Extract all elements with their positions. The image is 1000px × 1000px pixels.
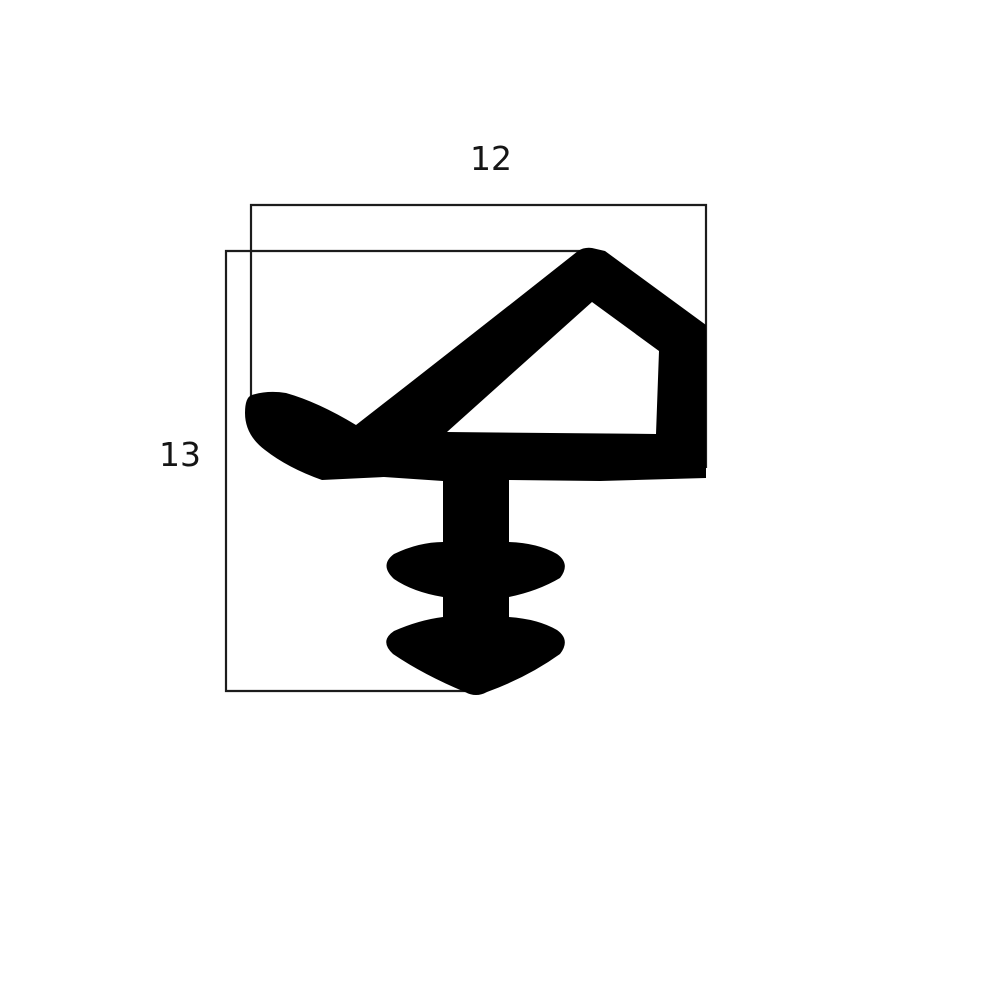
seal-profile-diagram: 12 13 [0, 0, 1000, 1000]
height-dimension-label: 13 [159, 435, 201, 474]
width-dimension-label: 12 [470, 139, 512, 178]
diagram-canvas: 12 13 [0, 0, 1000, 1000]
